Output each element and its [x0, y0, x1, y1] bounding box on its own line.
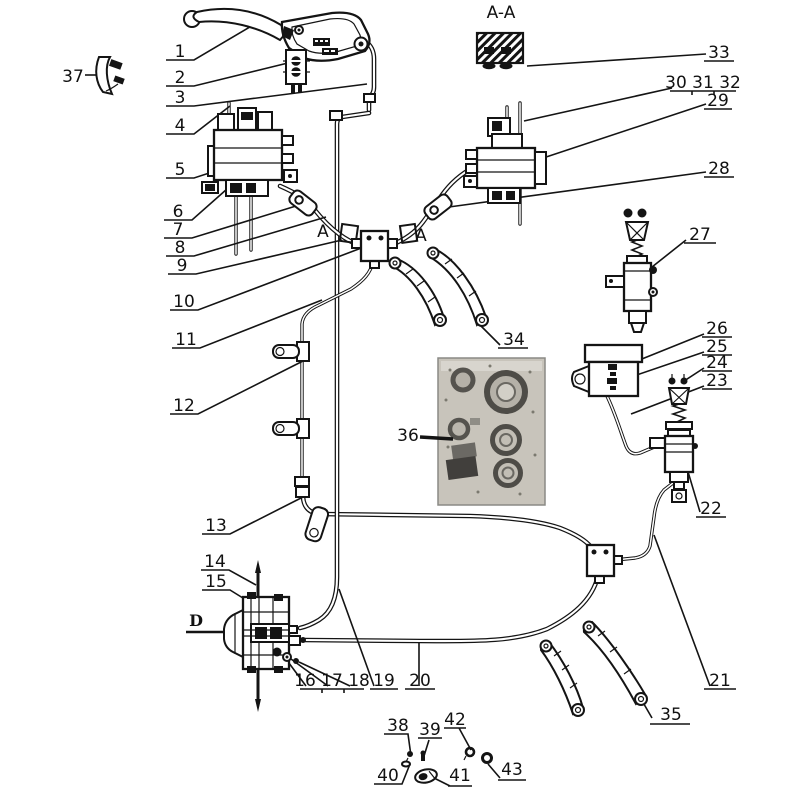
ring-43 [483, 754, 492, 763]
mounting-bracket [96, 57, 125, 94]
callout-34: 34 [503, 330, 525, 350]
cylinder-body [665, 436, 693, 472]
callout-40: 40 [377, 766, 399, 786]
pipe-union-nut [364, 94, 375, 102]
callout-6: 6 [173, 202, 184, 222]
callout-16-17-18: 16 17 18 [294, 671, 370, 691]
callout-26: 26 [706, 319, 728, 339]
callout-7: 7 [173, 220, 184, 240]
callout-25: 25 [706, 337, 728, 357]
ring-42 [466, 748, 474, 756]
right-brake-caliper [464, 118, 546, 203]
wheel-brake-cylinder [186, 560, 306, 712]
seal-ring-small-mid [450, 420, 468, 438]
rear-hose [303, 576, 598, 641]
callout-28: 28 [708, 159, 730, 179]
pipe-clamp-lower [273, 422, 299, 435]
section-view-a-a [477, 33, 523, 69]
callout-2: 2 [175, 68, 186, 88]
callout-39: 39 [419, 720, 441, 740]
handlebar-clamp [286, 50, 306, 84]
callout-22: 22 [700, 499, 722, 519]
rear-junction-tee [587, 545, 622, 583]
callout-12: 12 [173, 396, 195, 416]
callout-38: 38 [387, 716, 409, 736]
hatched-block [477, 33, 523, 63]
brake-pads-front [390, 248, 489, 327]
left-brake-caliper [202, 108, 297, 196]
callout-29: 29 [707, 91, 729, 111]
caliper-body [214, 130, 282, 180]
callout-36: 36 [397, 426, 419, 446]
callout-23: 23 [706, 371, 728, 391]
callout-35: 35 [660, 705, 682, 725]
cylinder-body [624, 263, 651, 311]
callout-30-31-32: 30 31 32 [665, 73, 741, 93]
rubber-boot [446, 456, 478, 480]
callout-4: 4 [175, 116, 186, 136]
tee-body [587, 545, 614, 576]
front-master-cylinder [606, 209, 657, 333]
right-hose-bracket [422, 192, 453, 221]
callout-19: 19 [373, 671, 395, 691]
hub-cone [224, 610, 243, 657]
callout-15: 15 [205, 572, 227, 592]
tee-body [361, 231, 388, 261]
bleeder-screw [273, 648, 282, 657]
callout-14: 14 [204, 552, 226, 572]
callout-21: 21 [709, 671, 731, 691]
reservoir-cap [585, 345, 642, 362]
repair-kit-photo-inset [438, 358, 545, 505]
junction-to-master-pipe [615, 483, 673, 560]
diagram-svg: 1 2 3 4 5 6 7 8 9 10 11 12 13 14 15 16 1… [0, 0, 800, 800]
callout-9: 9 [177, 256, 188, 276]
pipe-union [295, 477, 309, 486]
bolt-head-2 [500, 63, 513, 69]
washer-40 [402, 762, 410, 767]
section-view-label: A-A [487, 3, 516, 23]
pipe-clamp-upper [273, 345, 299, 358]
callout-33: 33 [708, 43, 730, 63]
callout-8: 8 [175, 238, 186, 258]
fluid-reservoir [572, 345, 642, 396]
callout-20: 20 [409, 671, 431, 691]
brake-pads-rear [541, 622, 648, 717]
callout-13: 13 [205, 516, 227, 536]
callout-1: 1 [175, 42, 186, 62]
callout-41: 41 [449, 766, 471, 786]
callout-42: 42 [444, 710, 466, 730]
brake-lever-blade [193, 9, 286, 40]
callout-43: 43 [501, 760, 523, 780]
callout-10: 10 [173, 292, 195, 312]
seal-ring-medium [493, 427, 520, 454]
caliper-body [477, 148, 535, 188]
callout-3: 3 [175, 88, 186, 108]
brake-system-parts-diagram: 1 2 3 4 5 6 7 8 9 10 11 12 13 14 15 16 1… [0, 0, 800, 800]
front-pipe-long [300, 113, 369, 628]
seal-ring-small-top [453, 370, 473, 390]
callout-11: 11 [175, 330, 197, 350]
fitting-screw-38 [407, 751, 413, 757]
axis-marker-d: D [189, 611, 203, 630]
seal-ring-lower [496, 461, 521, 486]
callout-37: 37 [62, 67, 84, 87]
left-hose-bracket [287, 188, 318, 217]
bolt-head-1 [483, 63, 496, 69]
section-marker-left: A [317, 222, 329, 242]
small-fittings [402, 748, 492, 785]
section-marker-right: A [415, 226, 427, 246]
callout-27: 27 [689, 225, 711, 245]
callout-5: 5 [175, 160, 186, 180]
